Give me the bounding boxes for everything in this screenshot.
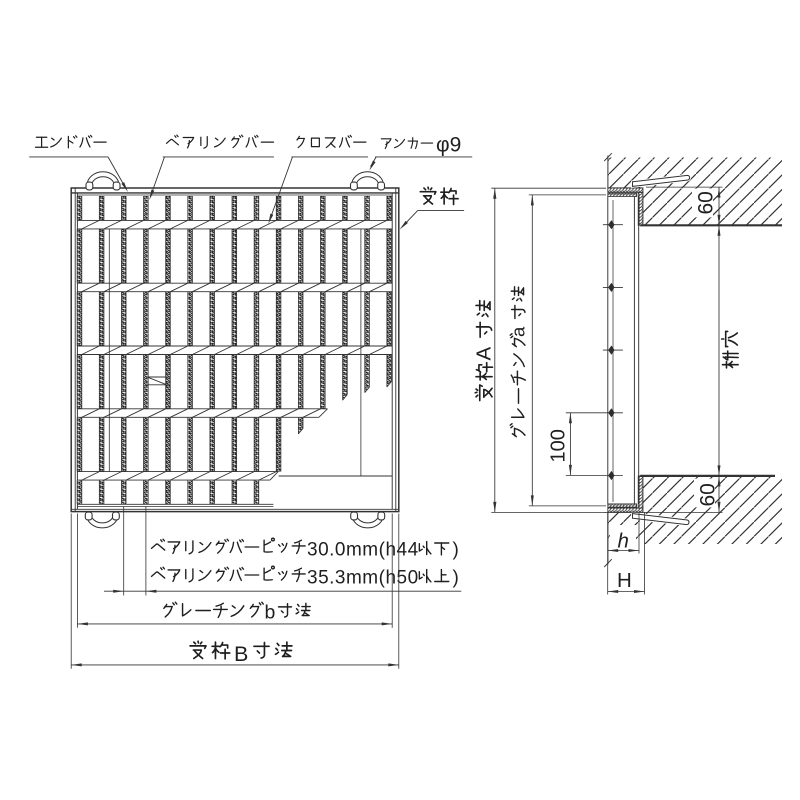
svg-text:35.3mm(h50: 35.3mm(h50: [307, 568, 419, 589]
svg-text:h: h: [618, 530, 629, 553]
svg-text:): ): [453, 568, 459, 589]
svg-text:60: 60: [697, 483, 720, 506]
svg-text:): ): [453, 540, 459, 561]
svg-text:a: a: [508, 326, 529, 337]
svg-text:60: 60: [695, 191, 718, 214]
svg-text:H: H: [617, 569, 632, 592]
svg-text:b: b: [265, 602, 276, 624]
svg-text:30.0mm(h44: 30.0mm(h44: [307, 540, 419, 561]
svg-text:A: A: [473, 347, 496, 361]
svg-text:φ9: φ9: [436, 134, 461, 157]
svg-text:B: B: [234, 642, 248, 666]
svg-text:100: 100: [548, 429, 570, 462]
